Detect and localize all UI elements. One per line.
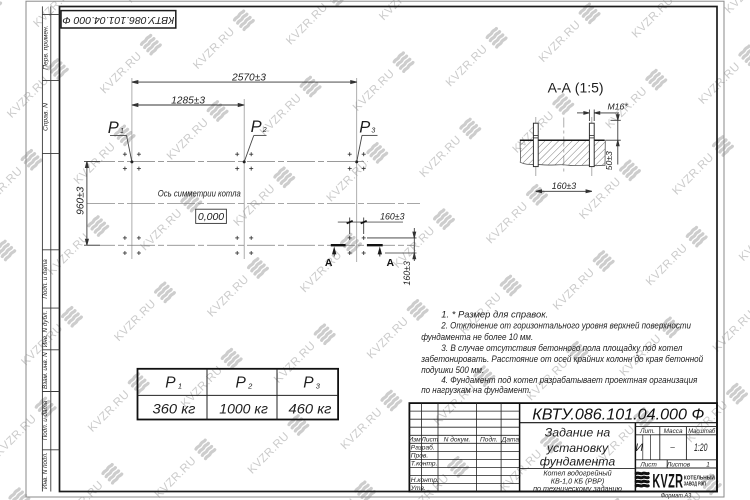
svg-text:P: P xyxy=(236,375,247,392)
svg-text:–: – xyxy=(670,443,675,452)
svg-text:Лист: Лист xyxy=(639,461,657,468)
svg-text:1. * Размер для справок.: 1. * Размер для справок. xyxy=(441,309,548,320)
svg-text:Разраб.: Разраб. xyxy=(411,444,435,452)
svg-text:ЗАВОД РЭП: ЗАВОД РЭП xyxy=(684,481,706,487)
svg-text:Подп. и дата: Подп. и дата xyxy=(41,259,49,299)
svg-text:Подп. и дата: Подп. и дата xyxy=(41,400,49,440)
svg-text:Взам. инв. N: Взам. инв. N xyxy=(42,352,49,389)
svg-text:Листов: Листов xyxy=(666,461,691,468)
svg-text:Масса: Масса xyxy=(664,428,683,435)
svg-text:360 кг: 360 кг xyxy=(153,400,196,416)
svg-text:3. В случае отсутствия бетонн: 3. В случае отсутствия бетонного пола пл… xyxy=(441,342,683,353)
svg-text:N докум.: N докум. xyxy=(444,436,471,444)
svg-text:А-А (1:5): А-А (1:5) xyxy=(548,80,604,96)
svg-text:1: 1 xyxy=(706,461,710,468)
svg-text:P: P xyxy=(165,375,176,392)
svg-text:Ось симметрии котла: Ось симметрии котла xyxy=(158,188,241,199)
svg-text:Подп.: Подп. xyxy=(480,436,498,444)
svg-text:А: А xyxy=(387,257,395,269)
svg-text:Масштаб: Масштаб xyxy=(688,427,715,435)
svg-text:Инв. N дубл.: Инв. N дубл. xyxy=(41,311,49,347)
svg-text:2: 2 xyxy=(247,382,253,391)
svg-text:установку: установку xyxy=(546,441,609,455)
svg-text:по техническому заданию: по техническому заданию xyxy=(533,484,622,493)
svg-text:P: P xyxy=(251,118,262,136)
svg-text:Дата: Дата xyxy=(501,437,520,444)
svg-text:КВТУ.086.101.04.000 Ф: КВТУ.086.101.04.000 Ф xyxy=(62,14,174,26)
svg-text:Н.контр.: Н.контр. xyxy=(411,477,439,484)
svg-text:1: 1 xyxy=(178,382,182,391)
svg-text:P: P xyxy=(303,375,314,392)
svg-text:М16*: М16* xyxy=(608,102,629,112)
svg-text:1:20: 1:20 xyxy=(694,442,708,454)
svg-text:KVZR: KVZR xyxy=(652,471,683,492)
svg-text:960±3: 960±3 xyxy=(75,186,86,215)
svg-text:P: P xyxy=(359,118,370,136)
svg-text:КОТЕЛЬНЫЙ: КОТЕЛЬНЫЙ xyxy=(684,473,715,481)
svg-text:Утв.: Утв. xyxy=(410,485,426,492)
svg-text:Лит.: Лит. xyxy=(639,428,655,435)
svg-text:2. Отклонение от горизонтальн: 2. Отклонение от горизонтального уровня … xyxy=(440,320,691,331)
svg-text:Формат А3: Формат А3 xyxy=(661,493,692,500)
svg-text:1285±3: 1285±3 xyxy=(171,96,205,107)
svg-text:фундамента: фундамента xyxy=(540,455,616,469)
svg-text:И: И xyxy=(635,442,643,454)
svg-text:Лист: Лист xyxy=(420,437,438,444)
svg-text:P: P xyxy=(108,119,119,137)
svg-text:Задание на: Задание на xyxy=(545,426,611,440)
svg-text:50±3: 50±3 xyxy=(604,151,614,170)
svg-text:Перв. примен.: Перв. примен. xyxy=(42,25,49,70)
svg-text:160±3: 160±3 xyxy=(380,212,405,222)
svg-text:1000 кг: 1000 кг xyxy=(219,400,268,416)
svg-text:А: А xyxy=(325,257,333,269)
svg-text:по нагрузкам на фундамент.: по нагрузкам на фундамент. xyxy=(421,384,531,395)
svg-text:Инв. N подл.: Инв. N подл. xyxy=(41,452,49,489)
svg-text:КВТУ.086.101.04.000 Ф: КВТУ.086.101.04.000 Ф xyxy=(532,406,704,423)
svg-text:Т.контр.: Т.контр. xyxy=(411,461,438,468)
svg-text:160±3: 160±3 xyxy=(552,181,577,191)
svg-text:забетонировать. Расстояние от: забетонировать. Расстояние от осей крайн… xyxy=(420,353,704,364)
svg-text:фундамента не более 10 мм.: фундамента не более 10 мм. xyxy=(421,331,533,342)
svg-text:460 кг: 460 кг xyxy=(289,400,332,416)
svg-text:Пров.: Пров. xyxy=(411,453,429,460)
svg-text:3: 3 xyxy=(371,127,375,134)
svg-text:160±3: 160±3 xyxy=(402,261,412,286)
svg-text:2: 2 xyxy=(262,127,267,134)
svg-text:1: 1 xyxy=(120,128,124,135)
svg-text:Справ. N: Справ. N xyxy=(42,103,49,131)
svg-text:2570±3: 2570±3 xyxy=(231,72,266,83)
svg-text:0,000: 0,000 xyxy=(198,211,224,223)
